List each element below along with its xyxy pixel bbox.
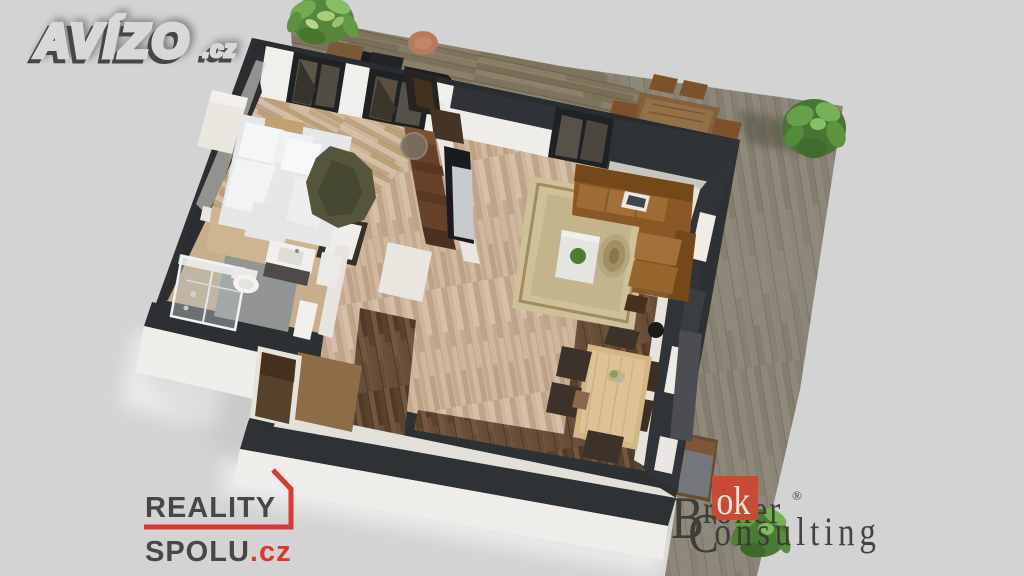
svg-text:®: ® [792, 488, 802, 503]
svg-text:AVÍZO: AVÍZO [35, 14, 191, 67]
svg-text:.cz: .cz [203, 36, 237, 62]
svg-text:onsulting: onsulting [714, 509, 880, 554]
svg-text:REALITY: REALITY [145, 492, 276, 524]
svg-text:SPOLU.cz: SPOLU.cz [145, 536, 292, 568]
